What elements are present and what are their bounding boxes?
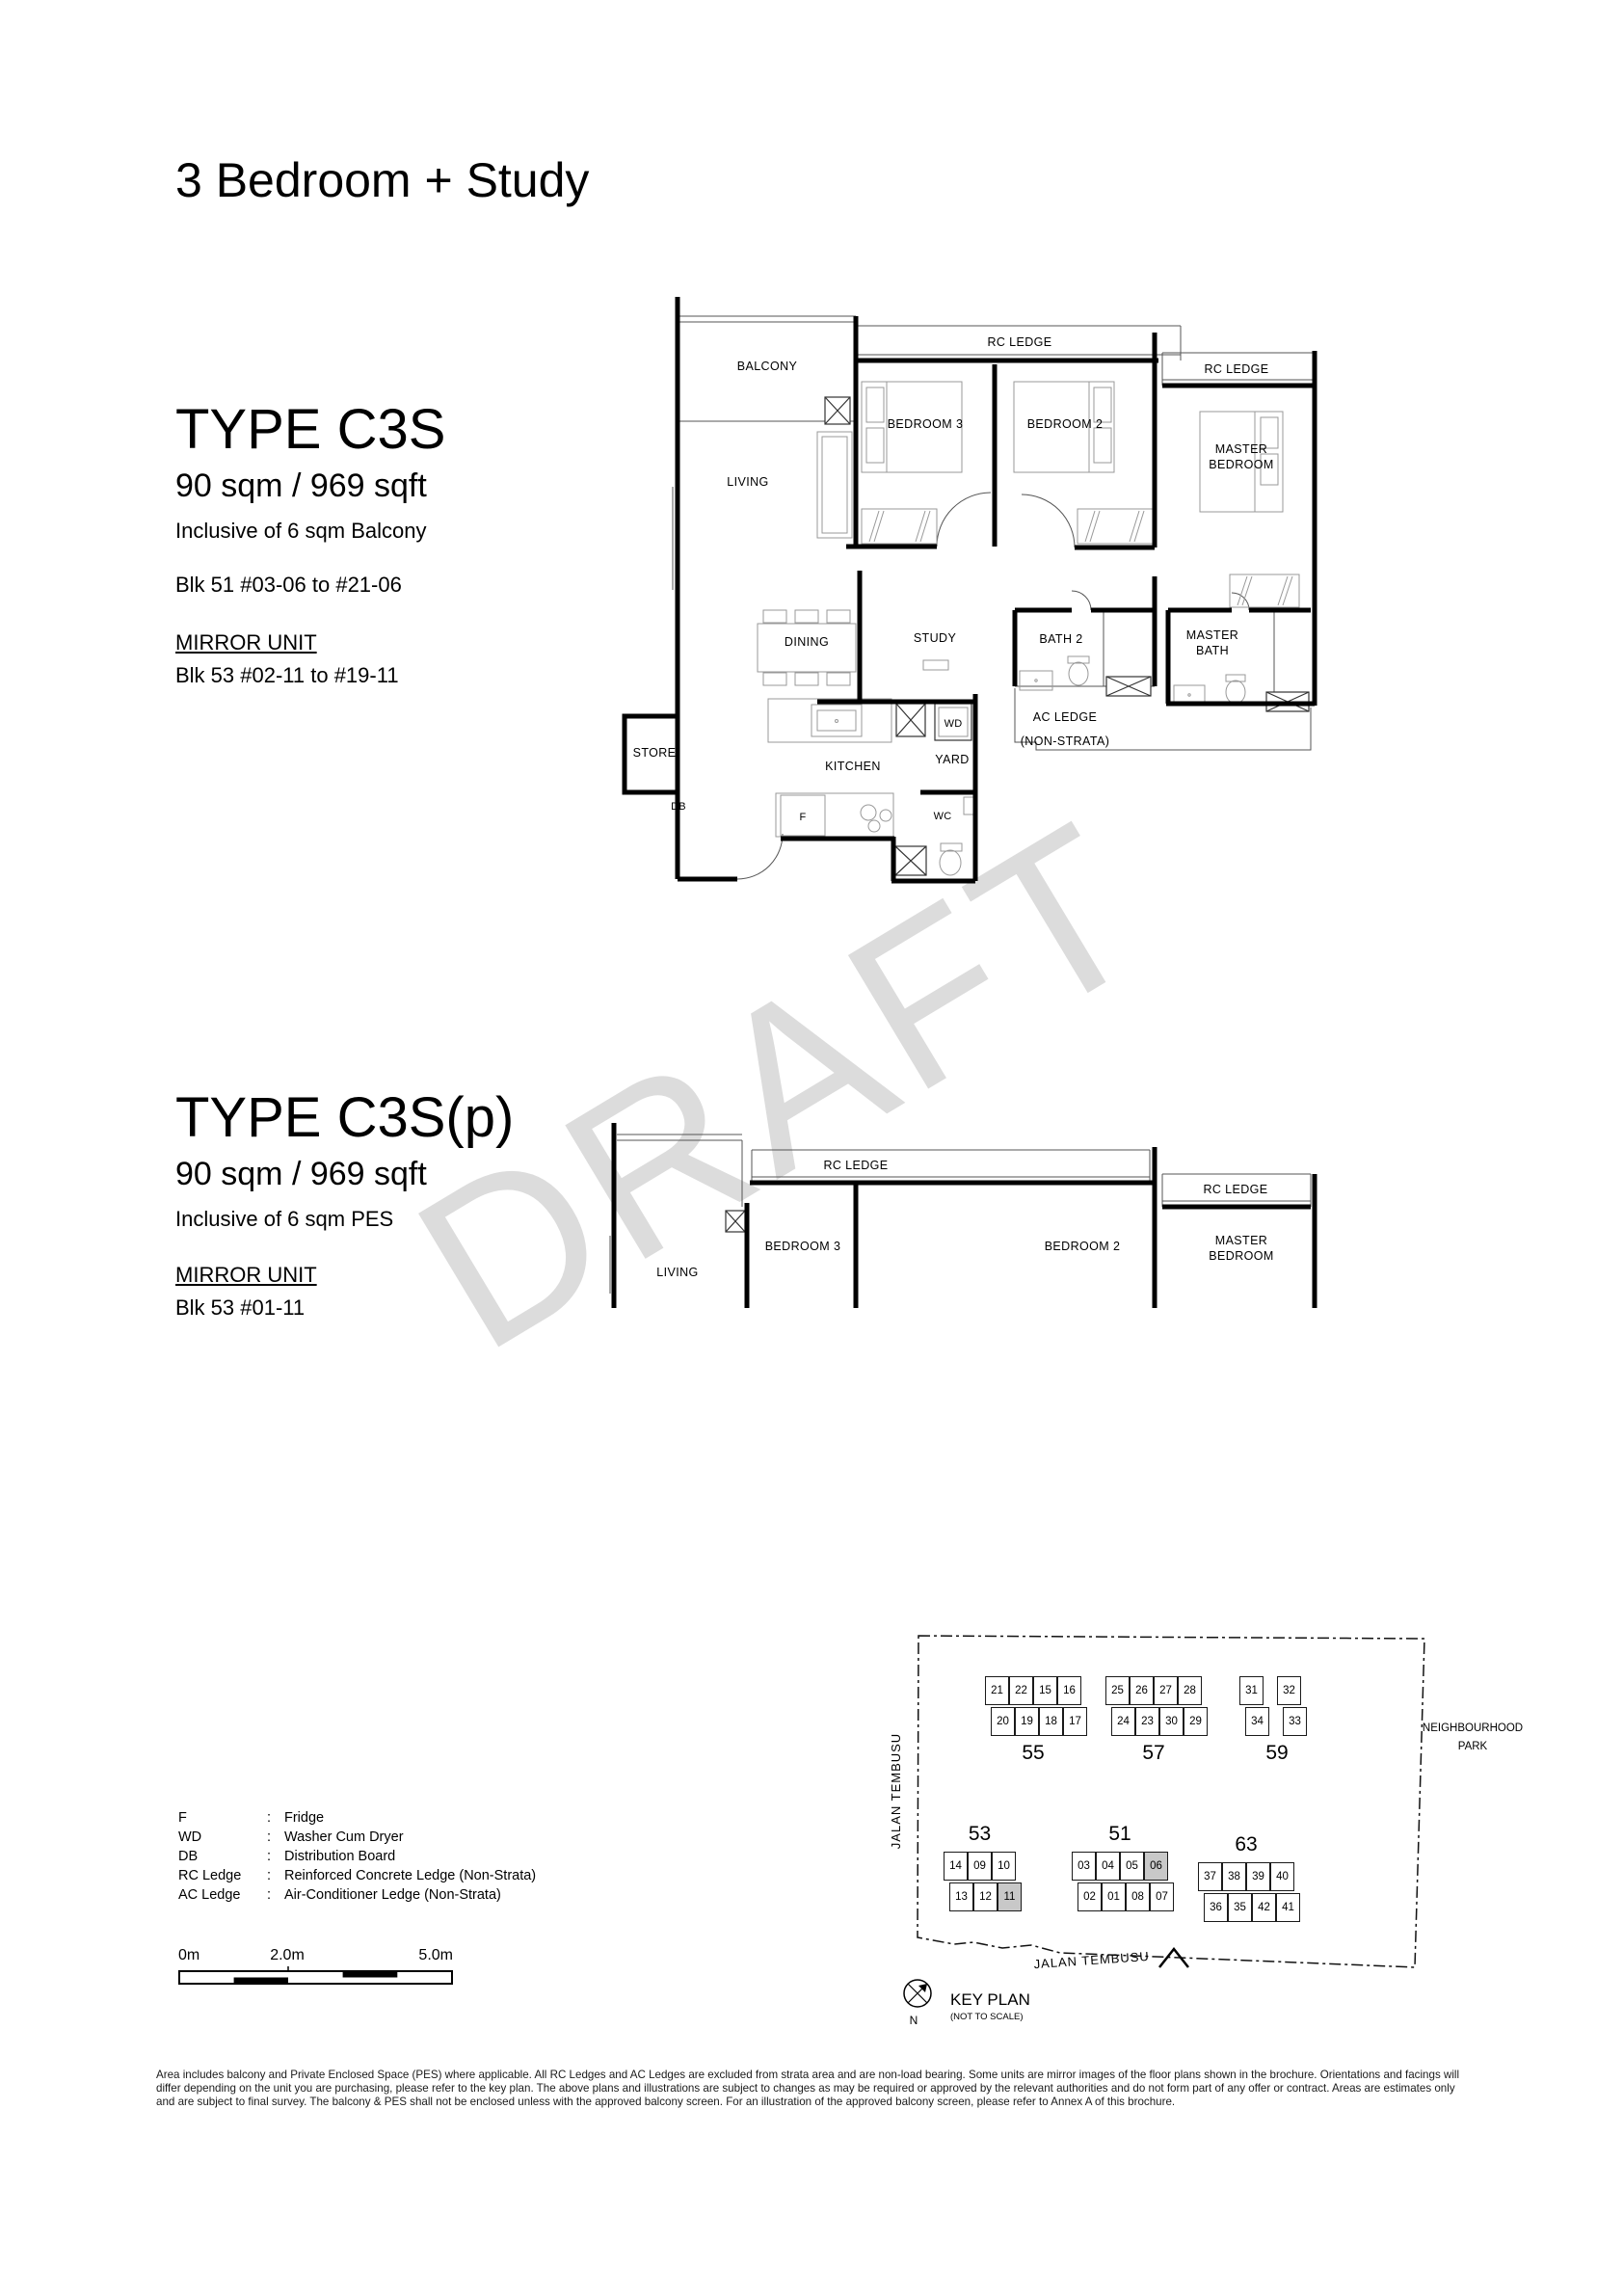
page-title: 3 Bedroom + Study [175,152,589,208]
legend-abbr: DB [178,1847,267,1866]
plan1-ac-ledge-label2: (NON-STRATA) [1021,734,1110,748]
plan2-master-bedroom-label1: MASTER [1215,1234,1268,1247]
key-plan-title: KEY PLAN [950,1990,1030,2009]
type-c3s-info: TYPE C3S 90 sqm / 969 sqft Inclusive of … [175,397,445,688]
legend-desc: Fridge [284,1808,536,1828]
legend-desc: Washer Cum Dryer [284,1828,536,1847]
road-label-left: JALAN TEMBUSU [889,1733,903,1849]
plan1-wd-label: WD [945,718,963,730]
plan2-master-bedroom-label2: BEDROOM [1209,1249,1273,1263]
north-label: N [910,2014,918,2027]
legend-row: WD:Washer Cum Dryer [178,1828,536,1847]
floor-plan-c3sp: LIVING RC LEDGE RC LEDGE BEDROOM 3 BEDRO… [598,1022,1340,1311]
scale-end-label: 5.0m [418,1947,453,1964]
plan1-master-bedroom-label2: BEDROOM [1209,458,1273,471]
legend-desc: Air-Conditioner Ledge (Non-Strata) [284,1885,536,1905]
type-c3sp-mirror-blocks: Blk 53 #01-11 [175,1295,514,1321]
type-c3s-inclusive: Inclusive of 6 sqm Balcony [175,519,445,544]
plan1-bath2-label: BATH 2 [1039,632,1082,646]
plan2-thin-structure [610,1135,1311,1294]
legend-colon: : [267,1847,284,1866]
type-c3s-name: TYPE C3S [175,397,445,462]
plan1-living-label: LIVING [727,475,768,489]
plan1-dining-label: DINING [785,635,829,649]
plan1-rc-ledge2-label: RC LEDGE [1204,362,1268,376]
park-label-line1: NEIGHBOURHOOD [1423,1722,1523,1734]
plan1-fridge-label: F [800,812,807,823]
plan2-walls [614,1123,1315,1308]
key-plan-subtitle: (NOT TO SCALE) [950,2012,1024,2022]
plan1-master-bath-label1: MASTER [1186,628,1239,642]
scale-start-label: 0m [178,1947,200,1964]
legend-abbr: RC Ledge [178,1866,267,1885]
plan1-study-label: STUDY [914,631,957,645]
legend-abbr: F [178,1808,267,1828]
legend-abbr: AC Ledge [178,1885,267,1905]
north-icon: N [904,1980,931,2027]
plan1-balcony-label: BALCONY [737,360,798,373]
floor-plan-c3s: BALCONY RC LEDGE RC LEDGE BEDROOM 3 BEDR… [598,289,1340,892]
scale-bar-graphic [178,1966,453,1988]
plan2-rc-ledge-label: RC LEDGE [823,1159,888,1172]
plan1-kitchen-label: KITCHEN [825,760,881,773]
legend-row: F:Fridge [178,1808,536,1828]
type-c3s-blocks: Blk 51 #03-06 to #21-06 [175,573,445,598]
park-label-line2: PARK [1458,1741,1488,1752]
legend-desc: Distribution Board [284,1847,536,1866]
type-c3s-mirror-blocks: Blk 53 #02-11 to #19-11 [175,663,445,688]
type-c3s-area: 90 sqm / 969 sqft [175,467,445,505]
plan2-living-label: LIVING [656,1266,698,1279]
type-c3sp-name: TYPE C3S(p) [175,1085,514,1150]
plan2-rc-ledge2-label: RC LEDGE [1203,1183,1267,1196]
plan1-master-bath-label2: BATH [1196,644,1229,657]
plan1-ac-ledge-label1: AC LEDGE [1033,710,1097,724]
plan1-bedroom2-label: BEDROOM 2 [1027,417,1104,431]
scale-mid-label: 2.0m [270,1947,305,1964]
plan2-duct-boxes [726,1211,745,1232]
plan1-rc-ledge-label: RC LEDGE [987,335,1051,349]
site-boundary [918,1636,1424,1967]
legend-row: AC Ledge:Air-Conditioner Ledge (Non-Stra… [178,1885,536,1905]
plan2-bedroom2-label: BEDROOM 2 [1045,1240,1121,1253]
plan1-master-bedroom-label1: MASTER [1215,442,1268,456]
type-c3s-mirror-label: MIRROR UNIT [175,630,445,655]
type-c3sp-info: TYPE C3S(p) 90 sqm / 969 sqft Inclusive … [175,1085,514,1321]
plan1-wc-label: WC [934,811,952,822]
legend: F:FridgeWD:Washer Cum DryerDB:Distributi… [178,1808,536,1905]
legend-colon: : [267,1808,284,1828]
legend-colon: : [267,1828,284,1847]
plan1-db-label: DB [671,801,686,813]
key-plan: N KEY PLAN (NOT TO SCALE) JALAN TEMBUSU … [887,1619,1561,2034]
type-c3sp-mirror-label: MIRROR UNIT [175,1263,514,1288]
legend-row: DB:Distribution Board [178,1847,536,1866]
legend-colon: : [267,1885,284,1905]
legend-abbr: WD [178,1828,267,1847]
plan1-store-label: STORE [633,746,677,760]
type-c3sp-inclusive: Inclusive of 6 sqm PES [175,1207,514,1232]
legend-colon: : [267,1866,284,1885]
plan2-bedroom3-label: BEDROOM 3 [765,1240,841,1253]
plan1-yard-label: YARD [935,753,969,766]
disclaimer-text: Area includes balcony and Private Enclos… [156,2069,1473,2109]
road-label-bottom: JALAN TEMBUSU [1033,1949,1150,1971]
legend-row: RC Ledge:Reinforced Concrete Ledge (Non-… [178,1866,536,1885]
plan1-walls [625,297,1315,881]
type-c3sp-area: 90 sqm / 969 sqft [175,1156,514,1193]
scale-bar: 0m 2.0m 5.0m [178,1947,453,1992]
plan1-bedroom3-label: BEDROOM 3 [888,417,964,431]
legend-desc: Reinforced Concrete Ledge (Non-Strata) [284,1866,536,1885]
brochure-page: DRAFT 3 Bedroom + Study TYPE C3S 90 sqm … [0,0,1623,2296]
